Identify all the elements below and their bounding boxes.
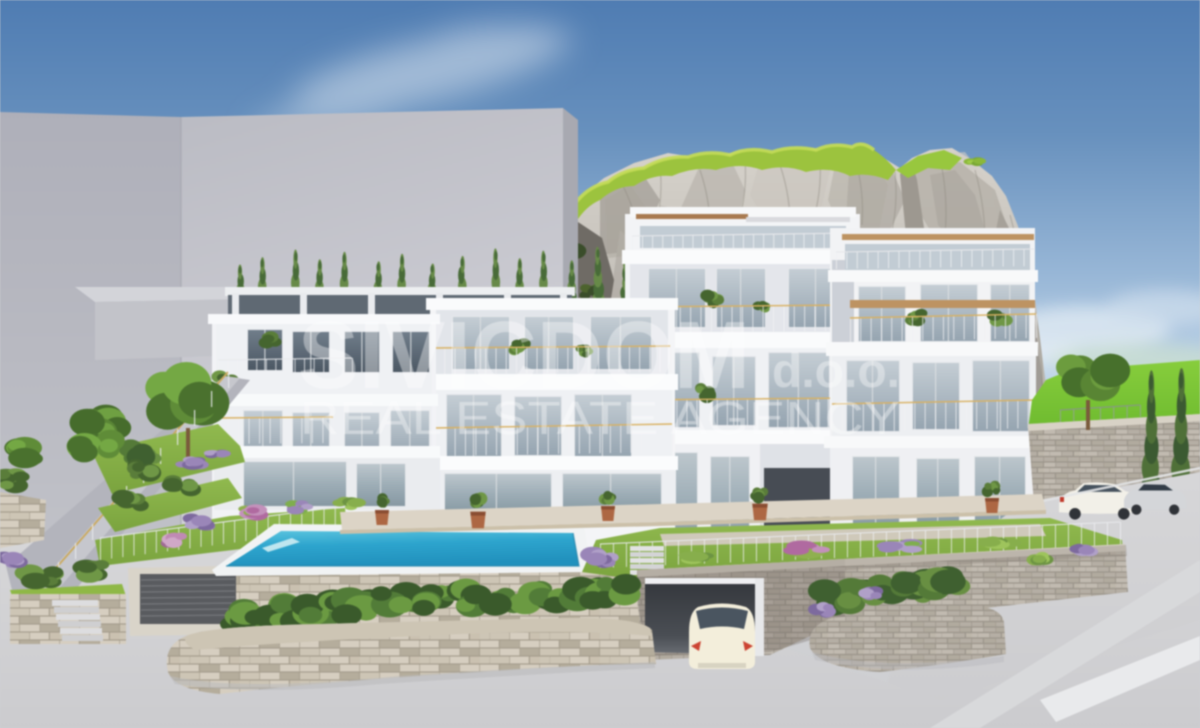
svg-text:d.o.o.: d.o.o.	[772, 345, 900, 398]
svg-text:REAL ESTATE AGENCY: REAL ESTATE AGENCY	[300, 392, 900, 444]
